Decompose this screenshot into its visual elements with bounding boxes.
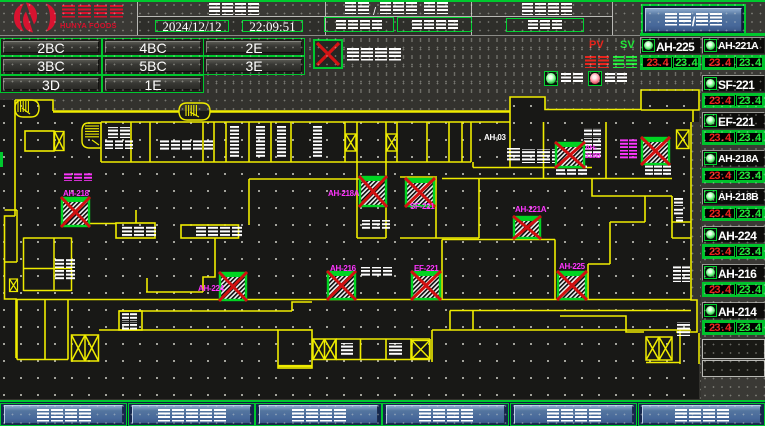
svg-text:AH-216: AH-216 (330, 264, 357, 273)
svg-text:AH-03: AH-03 (484, 133, 506, 142)
svg-text:AH-225: AH-225 (559, 262, 586, 271)
svg-text:AH-: AH- (585, 145, 598, 152)
svg-text:AH-221A: AH-221A (515, 205, 547, 214)
svg-text:AH-218: AH-218 (63, 189, 90, 198)
svg-text:SF-221: SF-221 (410, 202, 435, 211)
svg-text:AH-224: AH-224 (198, 284, 225, 293)
svg-text:EF-221: EF-221 (414, 264, 439, 273)
svg-text:AH-218A: AH-218A (328, 189, 360, 198)
svg-text:218B: 218B (585, 153, 601, 160)
